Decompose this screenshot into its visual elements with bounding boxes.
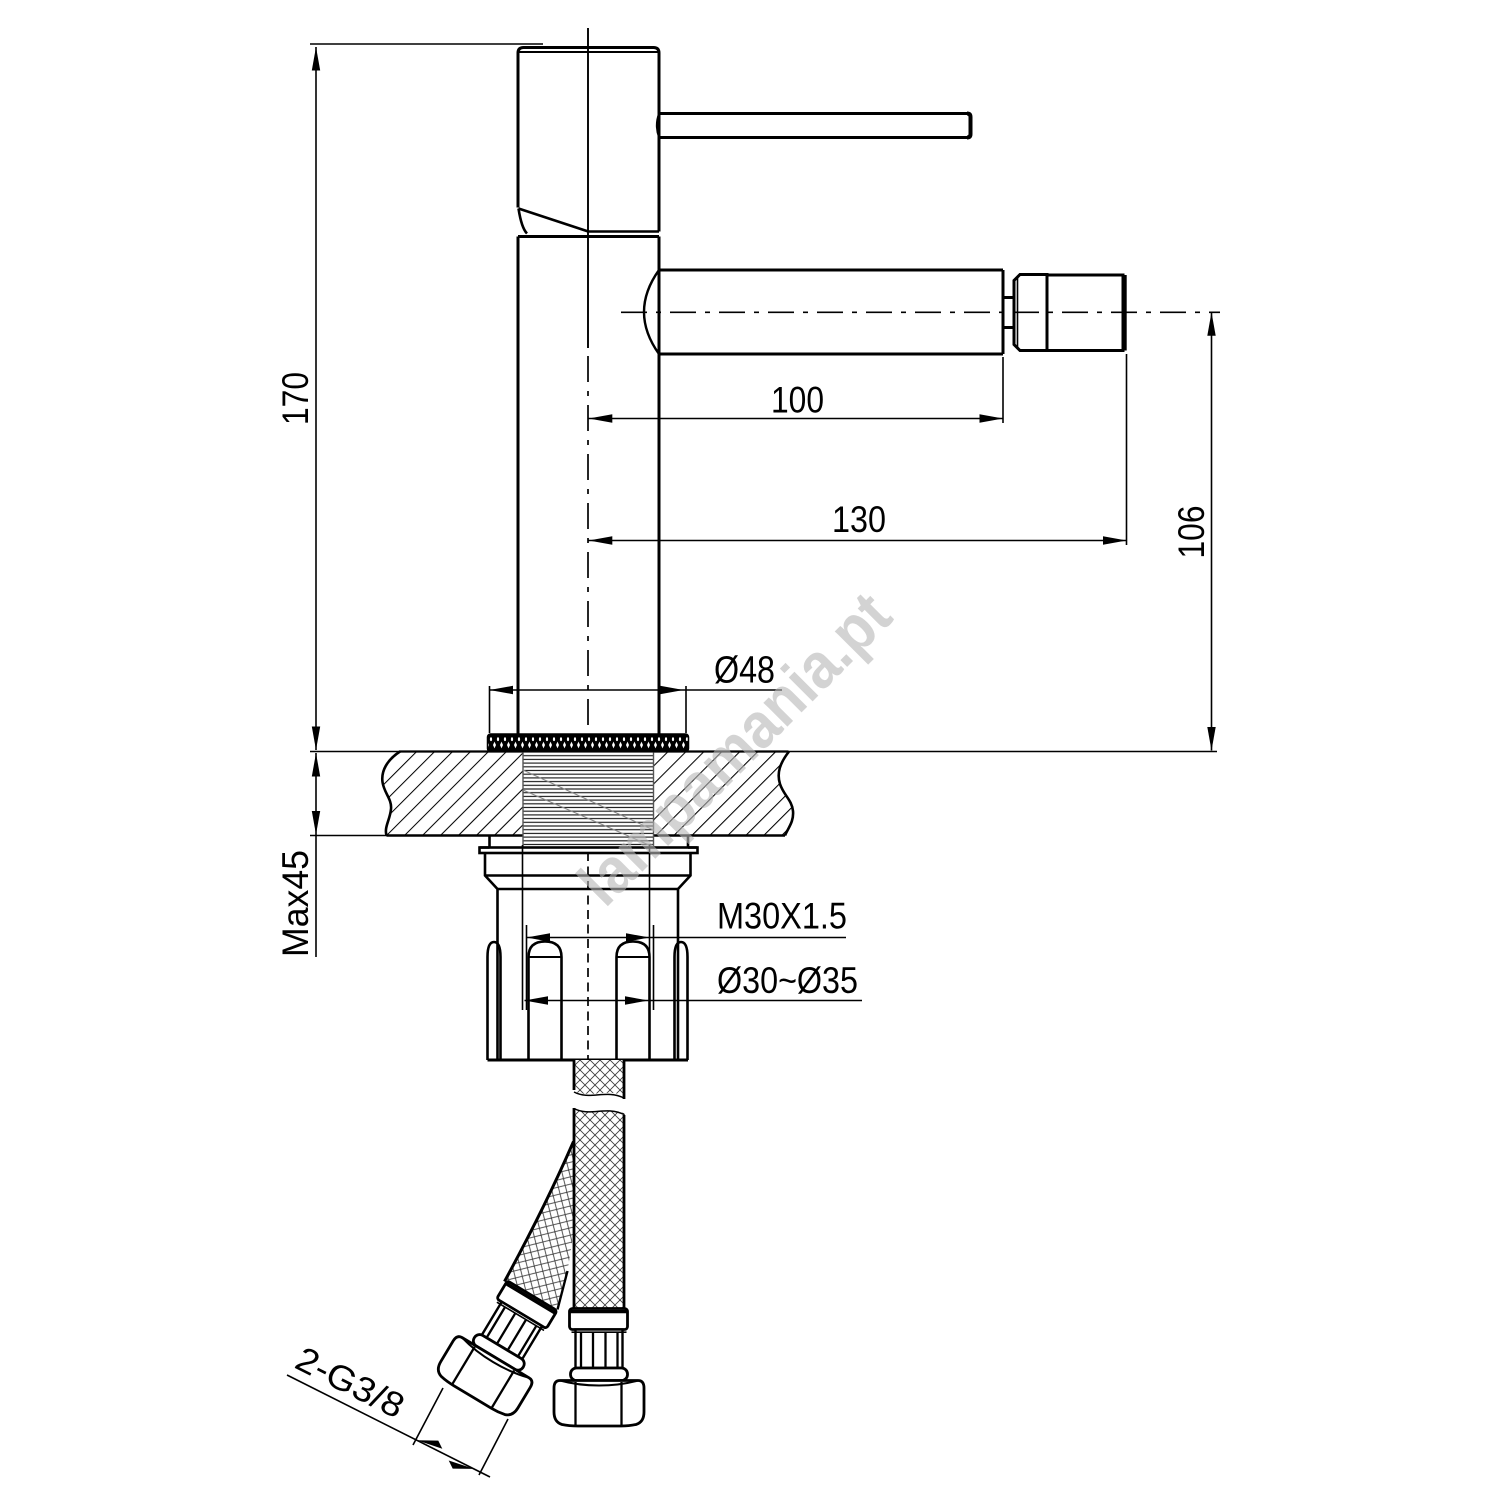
- svg-text:100: 100: [771, 380, 824, 421]
- svg-text:Max45: Max45: [275, 850, 316, 957]
- svg-text:Ø30~Ø35: Ø30~Ø35: [717, 960, 858, 1001]
- svg-text:M30X1.5: M30X1.5: [717, 896, 847, 937]
- svg-text:170: 170: [275, 372, 316, 425]
- svg-text:130: 130: [832, 499, 886, 540]
- svg-text:106: 106: [1171, 506, 1212, 559]
